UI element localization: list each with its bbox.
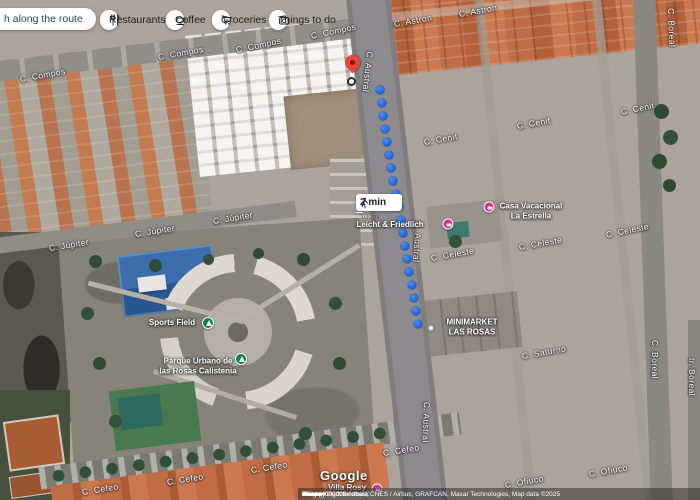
map-street-edge [688, 320, 700, 500]
route-duration-callout[interactable]: 2 min [356, 194, 402, 211]
route-dot [405, 268, 414, 277]
search-input[interactable] [4, 8, 92, 30]
chip-label: Things to do [278, 14, 336, 26]
chip-things-to-do[interactable]: Things to do [269, 10, 287, 30]
poi-marker-green-icon[interactable] [235, 353, 247, 365]
poi-marker-pink-icon[interactable] [443, 219, 454, 230]
route-dot [410, 294, 419, 303]
street-label: C. Austral [421, 402, 432, 443]
route-dot [387, 164, 396, 173]
chip-label: Groceries [221, 14, 267, 26]
route-dot [412, 307, 421, 316]
attribution-bar: Imagery ©2025 Airbus, CNES / Airbus, GRA… [298, 488, 700, 500]
map-texture-green-building [109, 381, 202, 451]
chip-label: Coffee [175, 14, 206, 26]
route-distance: 100m [360, 212, 379, 221]
route-dot [399, 229, 408, 238]
poi-label[interactable]: Leicht & Friedlich [356, 220, 423, 230]
route-dot [401, 242, 410, 251]
google-logo: Google [320, 468, 368, 483]
route-dot [381, 125, 390, 134]
route-dot [379, 112, 388, 121]
chip-groceries[interactable]: Groceries [212, 10, 230, 30]
map-texture-green-roof [118, 393, 164, 430]
route-start-icon[interactable] [347, 77, 356, 86]
scale-label: 20 m [302, 491, 316, 498]
street-label: C. Boreal [650, 340, 660, 379]
chip-label: Restaurants [109, 14, 166, 26]
map-canvas[interactable]: C. ComposC. ComposC. ComposC. ComposC. A… [0, 0, 700, 500]
route-dot [376, 86, 385, 95]
poi-label[interactable]: Casa VacacionalLa Estrella [500, 201, 563, 220]
chip-restaurants[interactable]: Restaurants [100, 10, 118, 30]
route-dot [408, 281, 417, 290]
poi-marker-green-icon[interactable] [202, 317, 214, 329]
street-label: tr. Boreal [687, 358, 697, 396]
search-pill[interactable] [0, 8, 96, 30]
poi-marker-pink-icon[interactable] [484, 202, 495, 213]
route-dot [378, 99, 387, 108]
map-texture-court [3, 414, 65, 471]
poi-label[interactable]: Parque Urbano delas Rosas Calistenia [159, 356, 236, 375]
route-dot [383, 138, 392, 147]
route-dot [414, 320, 423, 329]
map-texture-trees [0, 0, 7, 7]
street-label: C. Boreal [666, 8, 677, 47]
poi-label[interactable]: Sports Field [149, 318, 195, 328]
route-dot [385, 151, 394, 160]
route-dot [389, 177, 398, 186]
poi-marker-dot-icon[interactable] [428, 325, 434, 331]
chip-coffee[interactable]: Coffee [166, 10, 184, 30]
poi-label[interactable]: MINIMARKETLAS ROSAS [446, 317, 497, 336]
route-duration: 2 min [360, 197, 386, 208]
route-distance-tag: 100m [356, 212, 363, 213]
map-texture-plaza-dot [228, 322, 248, 342]
